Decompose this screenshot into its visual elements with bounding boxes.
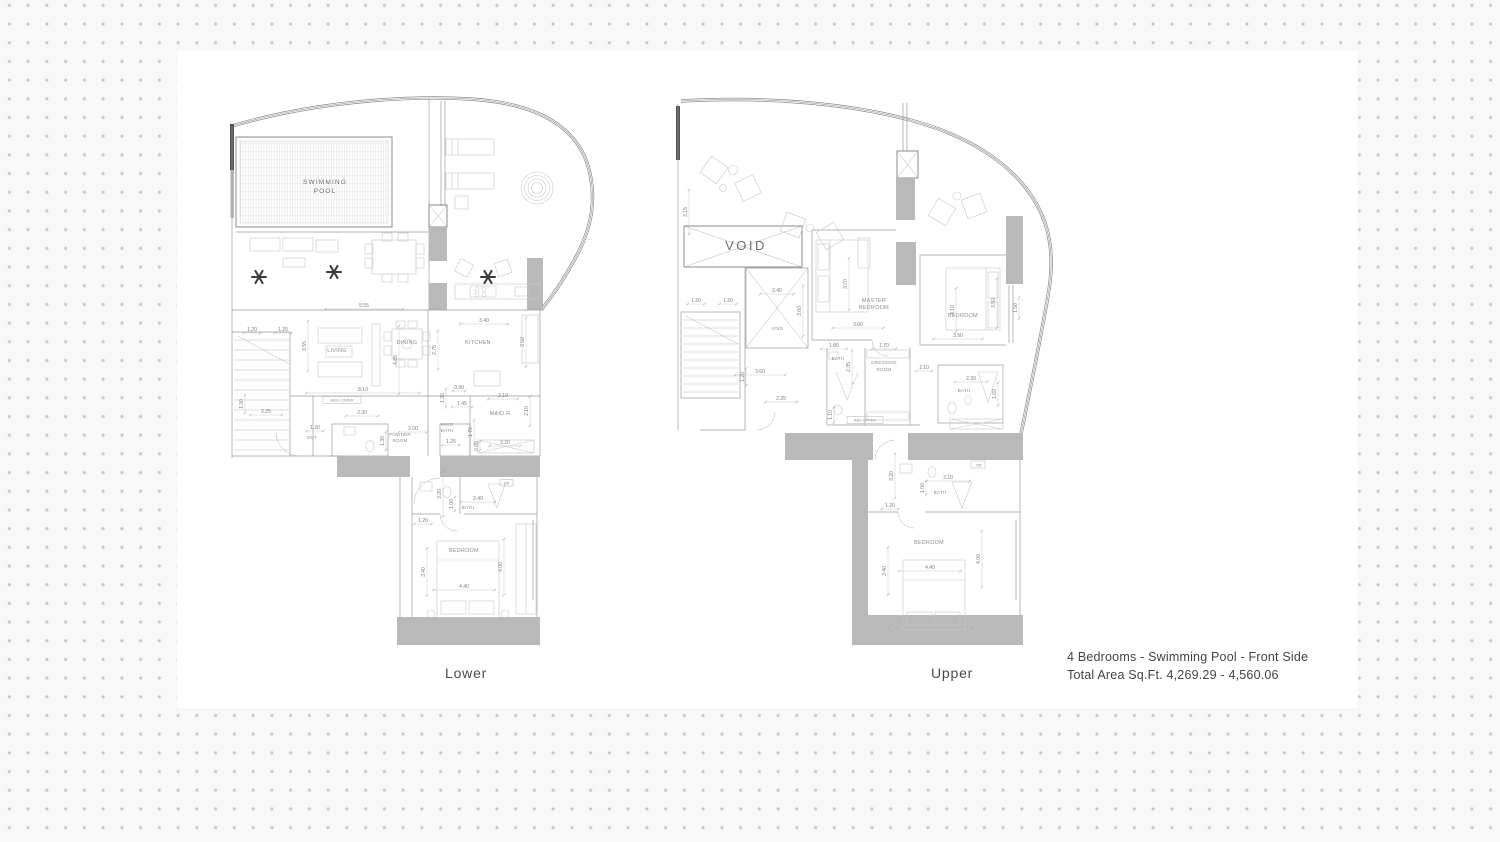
bath-fixtures — [829, 352, 858, 415]
dimension-label: 3.60 — [797, 306, 803, 316]
dimension-label: 2.40 — [772, 288, 782, 294]
room-label: DINING — [397, 340, 418, 346]
dimension-label: 3.50 — [953, 333, 963, 339]
dimension-label: 2.25 — [776, 396, 786, 402]
dimension-label: 3.40 — [421, 567, 427, 577]
dimension-label: 3.60 — [853, 322, 863, 328]
dimension-label: 1.30 — [380, 436, 386, 446]
plant-icon — [481, 271, 495, 283]
dimension-label: 1.30 — [239, 399, 245, 409]
annotation-label: DR — [504, 481, 510, 486]
plant-icon — [252, 271, 266, 283]
dimension-label: 1.20 — [885, 503, 895, 509]
dimension-label: 1.20 — [247, 327, 257, 333]
dimension-label: 3.50 — [520, 337, 526, 347]
area-label: POOL — [314, 188, 337, 195]
dimension-label: 1.00 — [920, 483, 926, 493]
lower-plan-title: Lower — [445, 665, 487, 681]
room-label: ROOM — [392, 438, 407, 443]
dimension-label: 8.10 — [358, 387, 368, 393]
room-label: BEDROOM — [914, 540, 944, 546]
dimension-label: 3.50 — [991, 298, 997, 308]
dimension-label: 4.40 — [925, 565, 935, 571]
upper-floor-plan: VOIDVOIDMASTERBEDROOMBEDROOMBATHDRESSING… — [676, 100, 1051, 645]
dimension-label: 4.00 — [976, 554, 982, 564]
door-arc — [875, 440, 895, 460]
room-label: KITCHEN — [465, 340, 491, 346]
dimension-label: 3.20 — [889, 471, 895, 481]
dimension-label: 1.10 — [919, 365, 929, 371]
dimension-label: 1.00 — [449, 499, 455, 509]
dimension-label: 3.55 — [302, 341, 308, 351]
dimension-label: 3.40 — [479, 318, 489, 324]
room-label: BATH — [462, 505, 475, 510]
area-label: VOID — [725, 238, 767, 253]
room-label: BATH — [934, 490, 947, 495]
dimension-label: 1.30 — [440, 393, 446, 403]
dimension-label: 3.10 — [943, 475, 953, 481]
kitchen-counter — [455, 284, 540, 386]
dimension-label: 2.75 — [432, 345, 438, 355]
dimension-label: 2.40 — [473, 496, 483, 502]
dimension-label: 4.40 — [459, 584, 469, 590]
dimension-label: 1.20 — [723, 298, 733, 304]
dimension-label: 4.85 — [393, 355, 399, 365]
elevator-shaft — [429, 205, 447, 227]
area-label: SWIMMING — [303, 179, 347, 186]
dimension-label: 1.10 — [828, 410, 834, 420]
room-label: BATH — [441, 428, 454, 433]
terrace-furniture — [700, 156, 987, 250]
dimension-label: 2.10 — [498, 393, 508, 399]
annotation-label: DR — [976, 463, 982, 468]
dimension-label: 1.70 — [879, 343, 889, 349]
dimension-label: 2.10 — [524, 406, 530, 416]
dimension-label: 5.55 — [359, 303, 369, 309]
powder-room-fixtures — [344, 427, 374, 452]
dimension-label: 1.20 — [740, 372, 746, 382]
elevator-shaft — [897, 151, 918, 178]
floor-plan-drawing: SWIMMINGPOOLLIVINGDININGKITCHENMAID.RMAI… — [0, 0, 1500, 842]
unit-area-text: Total Area Sq.Ft. 4,269.29 - 4,560.06 — [1067, 667, 1308, 685]
dimension-label: 3.60 — [755, 369, 765, 375]
room-label: ROOM — [876, 367, 891, 372]
room-label: MAID — [441, 422, 454, 427]
dimension-label: 2.35 — [846, 362, 852, 372]
dimension-label: 1.25 — [446, 439, 456, 445]
dimension-label: 3.20 — [437, 489, 443, 499]
room-label: LIVING — [327, 348, 346, 354]
dimension-label: 1.80 — [829, 343, 839, 349]
dimension-label: 1.20 — [310, 425, 320, 431]
dimension-label: 3.10 — [950, 305, 956, 315]
room-label: POWDER — [389, 432, 411, 437]
room-label: MAID.R — [490, 411, 511, 417]
bath-fixtures — [900, 461, 985, 508]
unit-type-text: 4 Bedrooms - Swimming Pool - Front Side — [1067, 649, 1308, 667]
dimension-label: 2.30 — [966, 376, 976, 382]
dimension-label: 3.70 — [843, 279, 849, 289]
bath-fixtures — [420, 480, 513, 509]
dimension-label: 2.20 — [500, 440, 510, 446]
dimension-label: 0.90 — [454, 385, 464, 391]
room-label: ENT — [307, 435, 317, 440]
room-label: BEDROOM — [449, 548, 479, 554]
lower-floor-plan: SWIMMINGPOOLLIVINGDININGKITCHENMAID.RMAI… — [230, 98, 593, 645]
dimension-label: 1.45 — [457, 401, 467, 407]
living-furniture — [318, 324, 380, 386]
dimension-label: 1.20 — [691, 298, 701, 304]
dimension-label: 3.40 — [882, 566, 888, 576]
door-arc — [757, 412, 775, 430]
dimension-label: 4.00 — [498, 562, 504, 572]
room-label: BATH — [832, 356, 845, 361]
upper-plan-title: Upper — [931, 665, 973, 681]
room-label: MASTER — [862, 298, 886, 304]
dimension-label: 2.30 — [357, 410, 367, 416]
entry-door-arc — [276, 432, 300, 456]
dimension-label: 1.70 — [468, 427, 474, 437]
dimension-label: 0.60 — [474, 441, 480, 451]
annotation-label: ABV UPPER — [854, 417, 876, 422]
dimension-label: 1.50 — [1013, 303, 1019, 313]
dimension-label: 1.60 — [992, 389, 998, 399]
upper-plan-labels: VOIDVOIDMASTERBEDROOMBEDROOMBATHDRESSING… — [683, 189, 1020, 596]
room-label: DRESSING — [871, 360, 897, 365]
dimension-label: 1.20 — [418, 518, 428, 524]
unit-description: 4 Bedrooms - Swimming Pool - Front Side … — [1067, 649, 1308, 684]
room-label: VOID — [771, 326, 784, 331]
staircase — [681, 312, 740, 398]
room-label: BEDROOM — [859, 305, 889, 311]
staircase — [234, 336, 289, 450]
dimension-label: 2.00 — [408, 426, 418, 432]
dimension-label: 1.20 — [278, 327, 288, 333]
room-label: BATH — [958, 388, 971, 393]
dimension-label: 2.25 — [261, 409, 271, 415]
plant-icon — [327, 266, 341, 278]
dimension-label: 3.15 — [683, 207, 689, 217]
page: SWIMMINGPOOLLIVINGDININGKITCHENMAID.RMAI… — [0, 0, 1500, 842]
annotation-label: ABV LOWER — [330, 398, 353, 403]
